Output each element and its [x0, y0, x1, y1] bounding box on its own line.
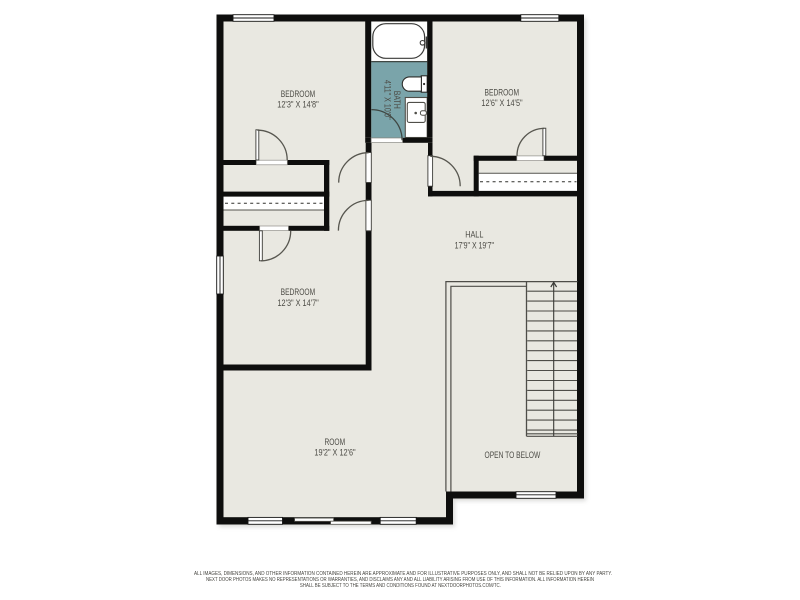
svg-text:BEDROOM: BEDROOM [281, 287, 316, 298]
svg-text:19'2" X 12'6": 19'2" X 12'6" [314, 447, 355, 457]
svg-text:SHALL BE SUBJECT TO THE TERMS: SHALL BE SUBJECT TO THE TERMS AND CONDIT… [300, 583, 501, 589]
svg-text:ROOM: ROOM [324, 437, 345, 448]
svg-text:BATH: BATH [392, 91, 403, 109]
svg-text:OPEN TO BELOW: OPEN TO BELOW [485, 450, 541, 460]
svg-text:17'9" X 19'7": 17'9" X 19'7" [455, 241, 494, 251]
svg-text:4'11" X 10'0": 4'11" X 10'0" [382, 80, 392, 120]
svg-text:12'3" X 14'8": 12'3" X 14'8" [277, 100, 319, 110]
svg-text:12'6" X 14'5": 12'6" X 14'5" [481, 98, 522, 108]
svg-text:HALL: HALL [465, 229, 484, 240]
svg-text:12'3" X 14'7": 12'3" X 14'7" [277, 298, 318, 308]
svg-text:BEDROOM: BEDROOM [281, 89, 316, 100]
